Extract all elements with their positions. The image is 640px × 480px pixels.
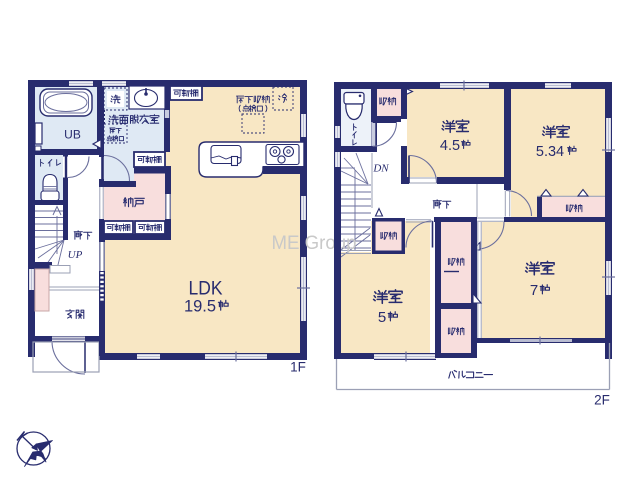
svg-text:UP: UP: [68, 249, 83, 261]
svg-text:5.34: 5.34: [536, 144, 564, 160]
svg-text:DN: DN: [372, 163, 389, 175]
svg-text:LDK: LDK: [189, 278, 223, 300]
svg-text:4.5: 4.5: [440, 138, 460, 154]
svg-text:5: 5: [378, 309, 386, 326]
svg-text:7: 7: [530, 282, 538, 299]
svg-text:1F: 1F: [290, 360, 306, 375]
svg-text:ME Group: ME Group: [272, 232, 357, 254]
svg-text:2F: 2F: [594, 393, 610, 408]
svg-text:19.5: 19.5: [184, 298, 216, 316]
svg-text:UB: UB: [64, 128, 81, 142]
